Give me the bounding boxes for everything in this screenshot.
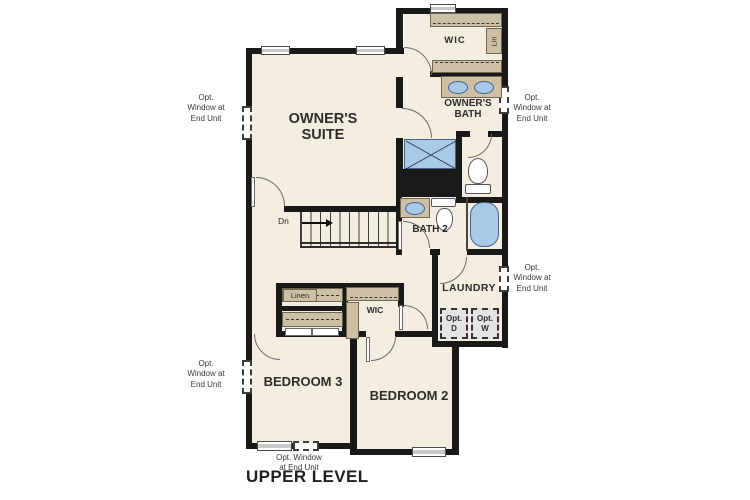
bedroom3-label: BEDROOM 3 bbox=[254, 375, 352, 390]
door-leaf bbox=[366, 337, 370, 362]
wall bbox=[396, 77, 403, 108]
sink bbox=[405, 202, 425, 215]
closet-rod-line bbox=[435, 62, 499, 63]
window bbox=[257, 441, 292, 451]
wall bbox=[467, 249, 508, 255]
lin-cabinet-label: Lin bbox=[489, 36, 498, 46]
shower bbox=[404, 139, 456, 169]
closet-bypass-door bbox=[312, 328, 339, 336]
closet-shelf bbox=[346, 287, 399, 301]
floor-plan: Dn Lin Linen Opt. D Opt. W OWNER'S SUITE bbox=[0, 0, 750, 500]
sink bbox=[474, 81, 494, 94]
wall bbox=[432, 341, 508, 347]
toilet-tank bbox=[431, 198, 456, 207]
closet-bypass-door bbox=[285, 328, 312, 336]
door-leaf bbox=[399, 305, 403, 330]
window bbox=[412, 447, 446, 457]
window bbox=[356, 46, 385, 55]
stairs-arrow-head-icon bbox=[326, 219, 333, 227]
closet-rod-line bbox=[350, 297, 397, 298]
wall bbox=[502, 8, 508, 348]
closet-rod-line bbox=[286, 319, 339, 320]
window bbox=[430, 4, 456, 13]
stairs-arrow bbox=[302, 222, 326, 224]
opt-window-note: Opt. Window at End Unit bbox=[504, 263, 560, 294]
plan-title: UPPER LEVEL bbox=[246, 467, 368, 487]
owners-suite-label: OWNER'S SUITE bbox=[262, 111, 384, 143]
door-leaf bbox=[251, 177, 255, 207]
linen-label: Linen bbox=[291, 291, 309, 300]
closet-panel bbox=[346, 302, 359, 339]
laundry-label: LAUNDRY bbox=[434, 283, 504, 295]
optional-dryer-box: Opt. D bbox=[440, 308, 468, 339]
bed2-wic-label: WIC bbox=[360, 306, 390, 316]
lin-cabinet: Lin bbox=[486, 28, 502, 54]
closet-rod-line bbox=[433, 23, 499, 24]
owners-bath-label: OWNER'S BATH bbox=[428, 98, 508, 120]
closet-shelf bbox=[430, 13, 502, 27]
stairs-rail-line bbox=[300, 242, 396, 244]
optional-washer-box: Opt. W bbox=[471, 308, 499, 339]
opt-window-note: Opt. Window at End Unit bbox=[168, 93, 244, 124]
sink bbox=[448, 81, 468, 94]
wall-plumbing-chase bbox=[396, 169, 456, 197]
opt-window-note: Opt. Window at End Unit bbox=[168, 359, 244, 390]
wall bbox=[396, 8, 403, 48]
optional-window-marker bbox=[293, 441, 319, 451]
toilet-bowl bbox=[468, 158, 488, 184]
stairs-down-label: Dn bbox=[278, 216, 298, 226]
toilet-tank bbox=[465, 184, 491, 194]
wall bbox=[396, 138, 403, 169]
opt-window-note: Opt. Window at End Unit bbox=[504, 93, 560, 124]
bedroom2-label: BEDROOM 2 bbox=[360, 389, 458, 404]
wall bbox=[276, 306, 344, 311]
bath2-label: BATH 2 bbox=[402, 224, 458, 235]
tub-alcove-wall bbox=[466, 197, 468, 251]
owners-wic-label: WIC bbox=[432, 36, 478, 47]
wall bbox=[432, 255, 438, 347]
bathtub bbox=[470, 202, 499, 247]
linen-cabinet: Linen bbox=[283, 289, 317, 302]
wall bbox=[350, 331, 357, 449]
window bbox=[261, 46, 290, 55]
shower-x-icon bbox=[405, 140, 457, 170]
